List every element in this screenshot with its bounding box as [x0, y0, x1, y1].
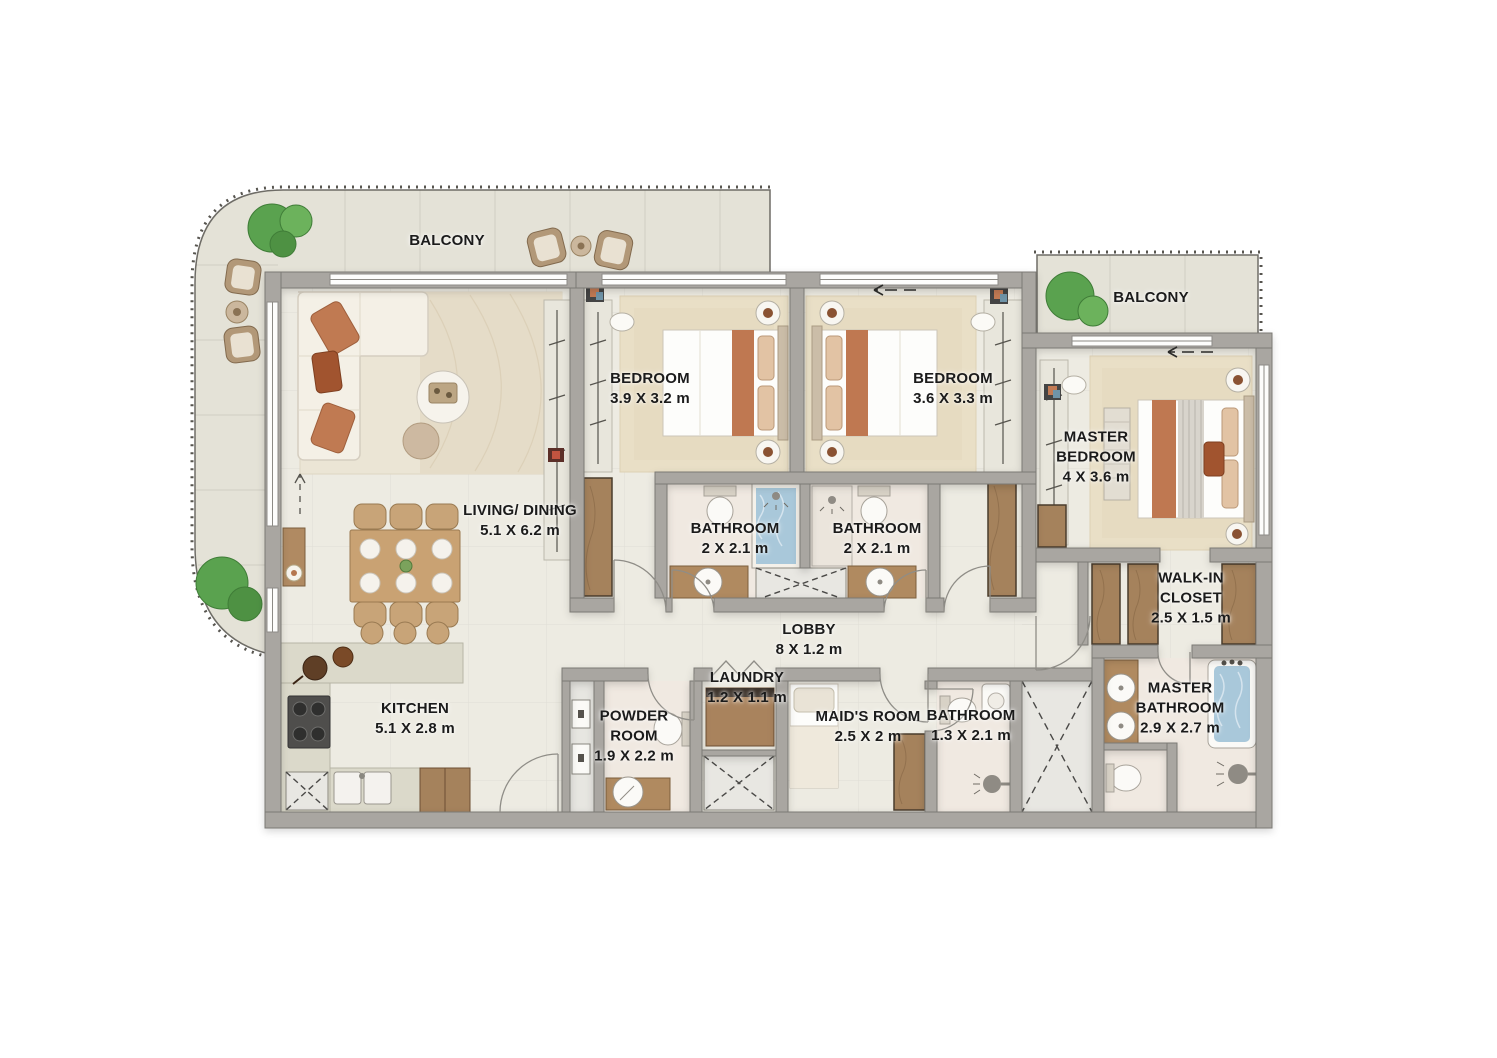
room-label-balcony-right: BALCONY [1081, 288, 1221, 308]
room-label-kitchen: KITCHEN5.1 X 2.8 m [335, 699, 495, 739]
room-label-master-bathroom: MASTER BATHROOM2.9 X 2.7 m [1117, 678, 1243, 737]
room-label-bathroom-1: BATHROOM2 X 2.1 m [675, 519, 795, 559]
master-chair [1062, 376, 1086, 394]
room-label-bathroom-2: BATHROOM2 X 2.1 m [817, 519, 937, 559]
kitchen-shaft [286, 772, 328, 810]
kitchen-cabinet [420, 768, 470, 812]
room-label-master-bedroom: MASTER BEDROOM4 X 3.6 m [1044, 427, 1148, 486]
room-label-bedroom-1: BEDROOM3.9 X 3.2 m [585, 369, 715, 409]
bed-master [1138, 396, 1254, 522]
room-label-bathroom-3: BATHROOM1.3 X 2.1 m [911, 706, 1031, 746]
kitchen-stools [361, 622, 449, 644]
main-shaft [1022, 681, 1092, 812]
room-label-lobby: LOBBY8 X 1.2 m [749, 620, 869, 660]
bedroom-2-decor [990, 288, 1008, 304]
bedroom-2-chair [971, 313, 995, 331]
room-label-balcony-left: BALCONY [377, 231, 517, 251]
bathroom-shaft [756, 568, 846, 600]
master-toilet [1111, 765, 1141, 791]
master-decor [1044, 384, 1061, 400]
room-label-living-dining: LIVING/ DINING5.1 X 6.2 m [410, 501, 630, 541]
dining-sideboard [283, 528, 305, 586]
room-label-powder-room: POWDER ROOM1.9 X 2.2 m [585, 706, 683, 765]
floor-plan: BALCONY BALCONY LIVING/ DINING5.1 X 6.2 … [0, 0, 1497, 1058]
room-label-laundry: LAUNDRY1.2 X 1.1 m [672, 668, 822, 708]
bedroom-1-chair [610, 313, 634, 331]
room-label-bedroom-2: BEDROOM3.6 X 3.3 m [888, 369, 1018, 409]
living-console-decor [548, 448, 564, 462]
stove [288, 696, 330, 748]
master-shower-head [1228, 764, 1248, 784]
room-label-walk-in-closet: WALK-IN CLOSET2.5 X 1.5 m [1135, 568, 1247, 627]
